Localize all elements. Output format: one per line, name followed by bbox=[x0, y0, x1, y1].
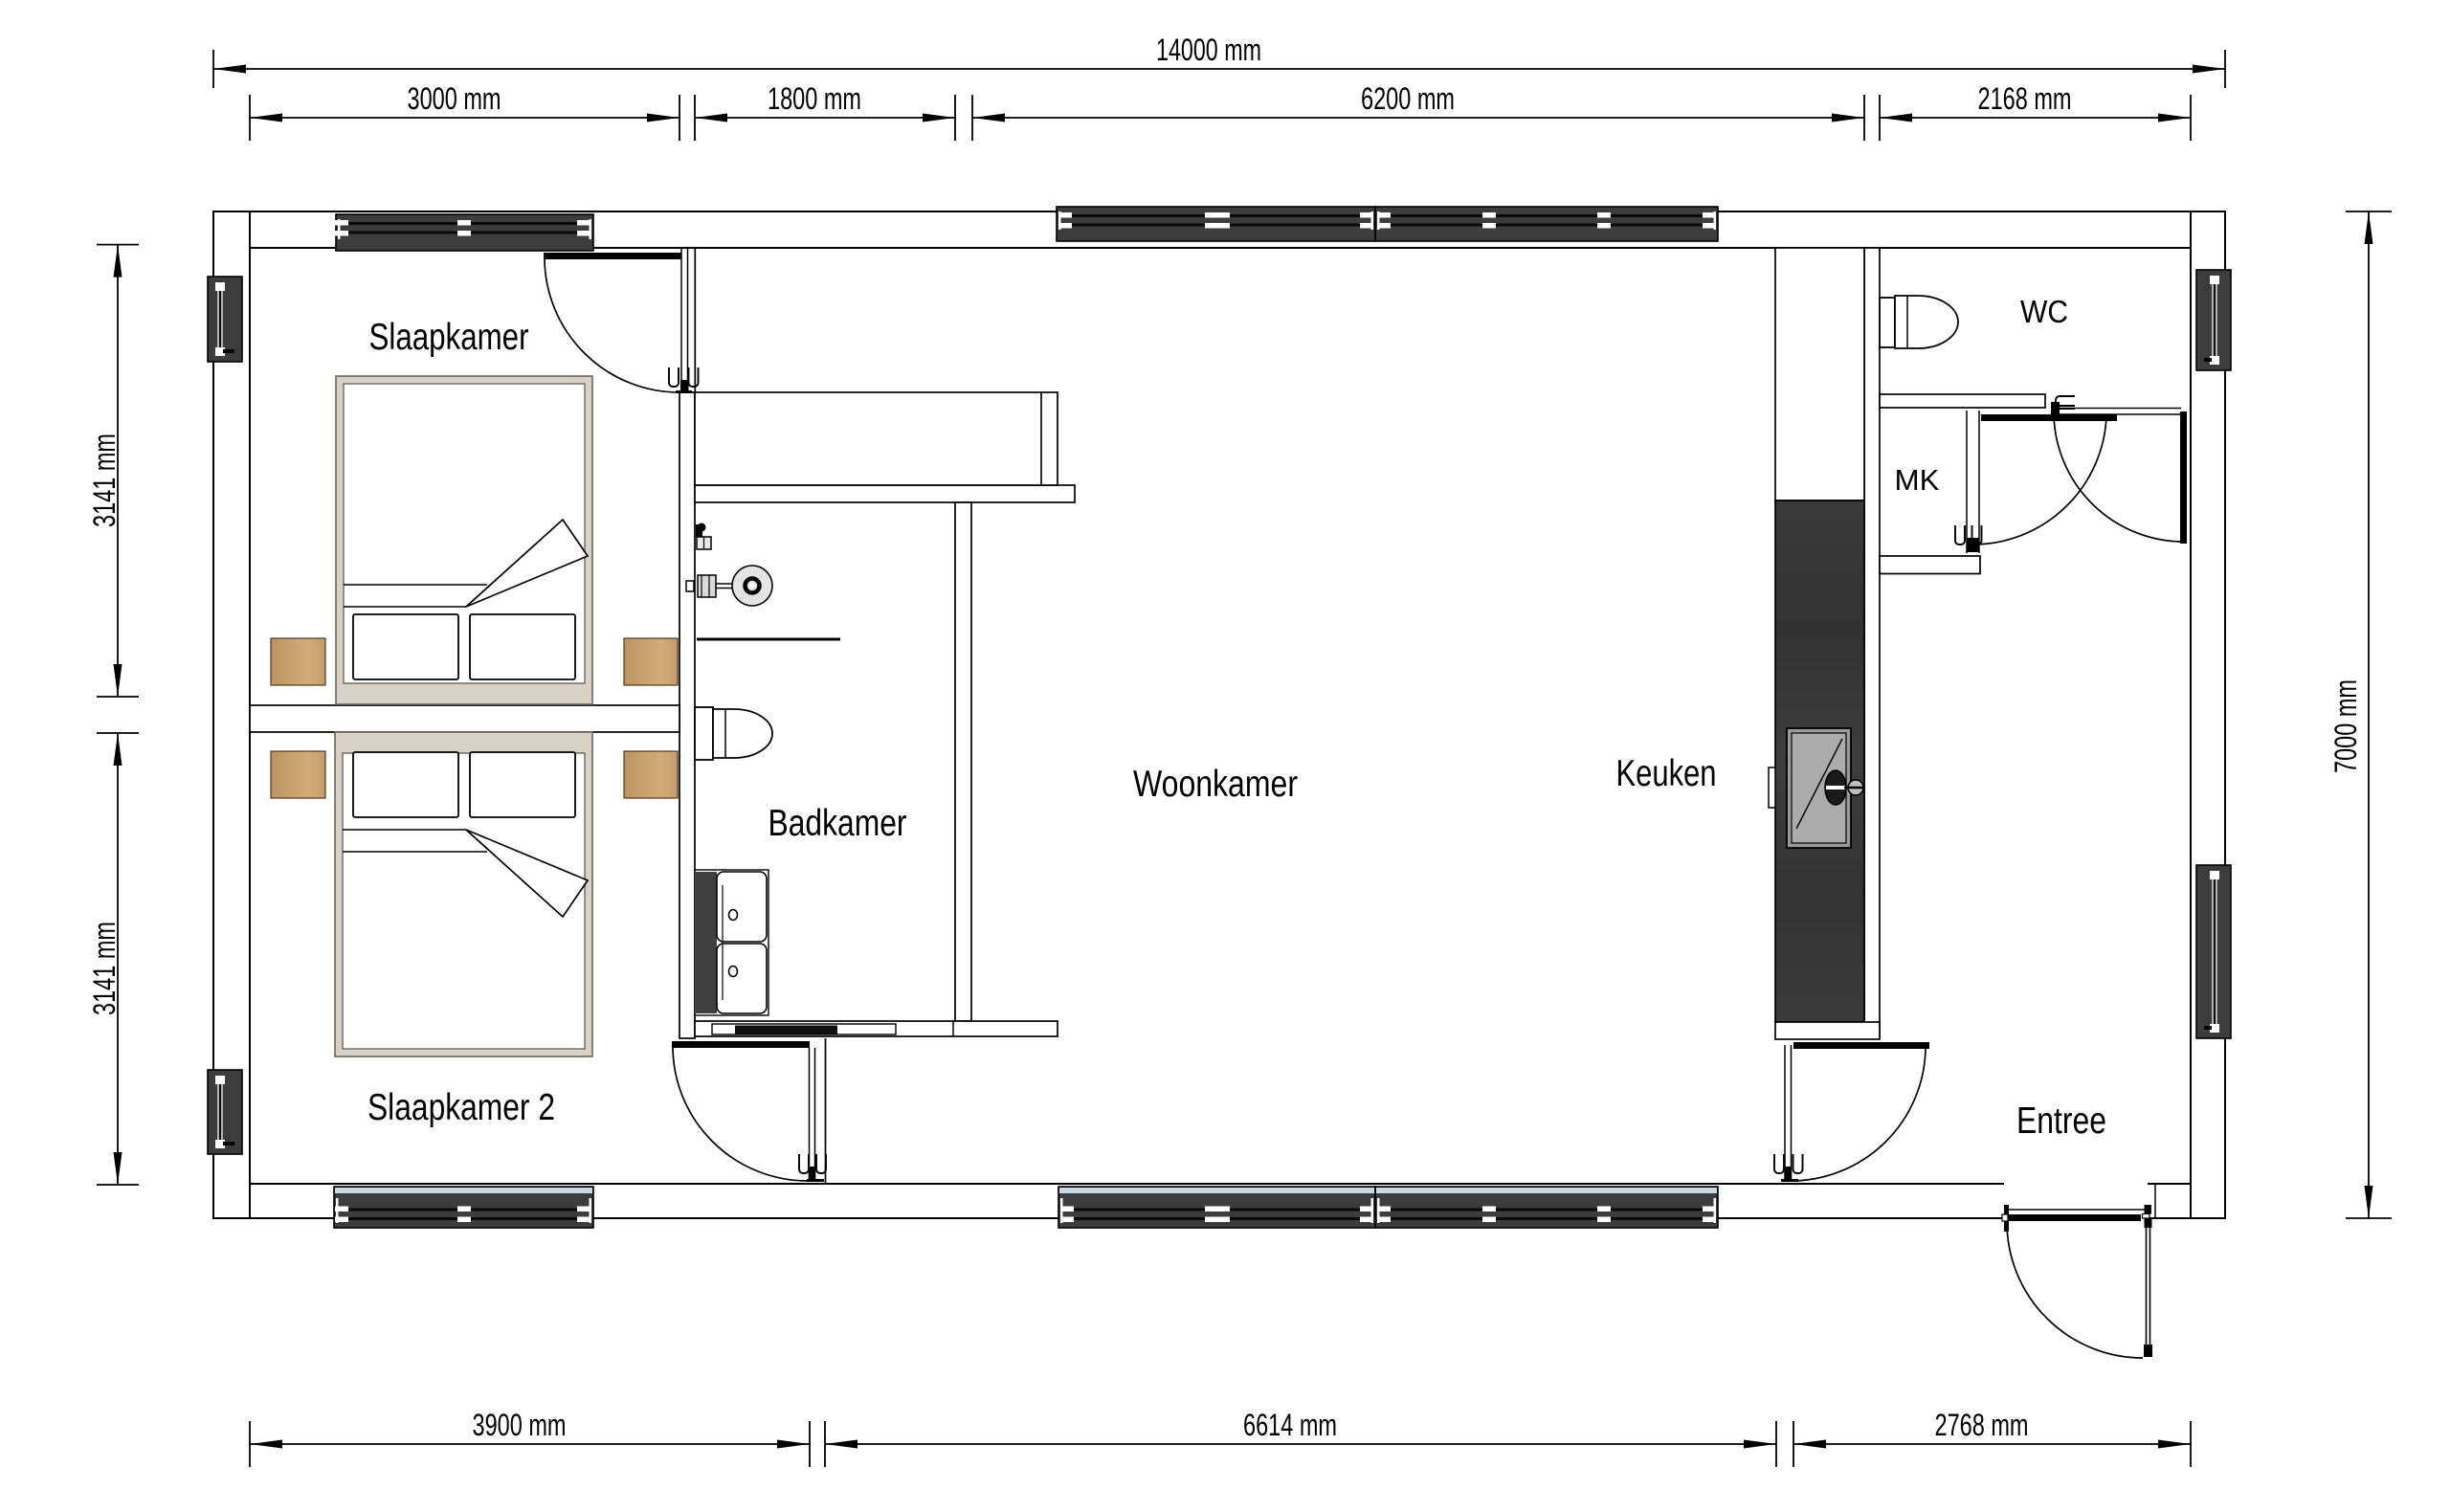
svg-text:3900 mm: 3900 mm bbox=[473, 1408, 567, 1442]
svg-text:3000 mm: 3000 mm bbox=[408, 81, 501, 116]
svg-text:6200 mm: 6200 mm bbox=[1361, 81, 1455, 116]
svg-text:Keuken: Keuken bbox=[1616, 753, 1717, 794]
svg-text:2168 mm: 2168 mm bbox=[1978, 81, 2072, 116]
svg-text:Woonkamer: Woonkamer bbox=[1133, 764, 1298, 805]
svg-text:6614 mm: 6614 mm bbox=[1243, 1408, 1337, 1442]
svg-text:WC: WC bbox=[2020, 294, 2068, 329]
svg-text:3141 mm: 3141 mm bbox=[87, 922, 122, 1015]
svg-text:Slaapkamer 2: Slaapkamer 2 bbox=[367, 1087, 555, 1128]
svg-text:Entree: Entree bbox=[2016, 1101, 2106, 1142]
svg-text:Badkamer: Badkamer bbox=[768, 803, 907, 844]
svg-text:Slaapkamer: Slaapkamer bbox=[369, 317, 529, 358]
svg-text:MK: MK bbox=[1895, 463, 1940, 497]
svg-text:2768 mm: 2768 mm bbox=[1935, 1408, 2029, 1442]
svg-text:7000 mm: 7000 mm bbox=[2328, 679, 2363, 773]
svg-text:14000 mm: 14000 mm bbox=[1156, 33, 1261, 67]
svg-text:3141 mm: 3141 mm bbox=[87, 434, 122, 527]
svg-text:1800 mm: 1800 mm bbox=[768, 81, 861, 116]
